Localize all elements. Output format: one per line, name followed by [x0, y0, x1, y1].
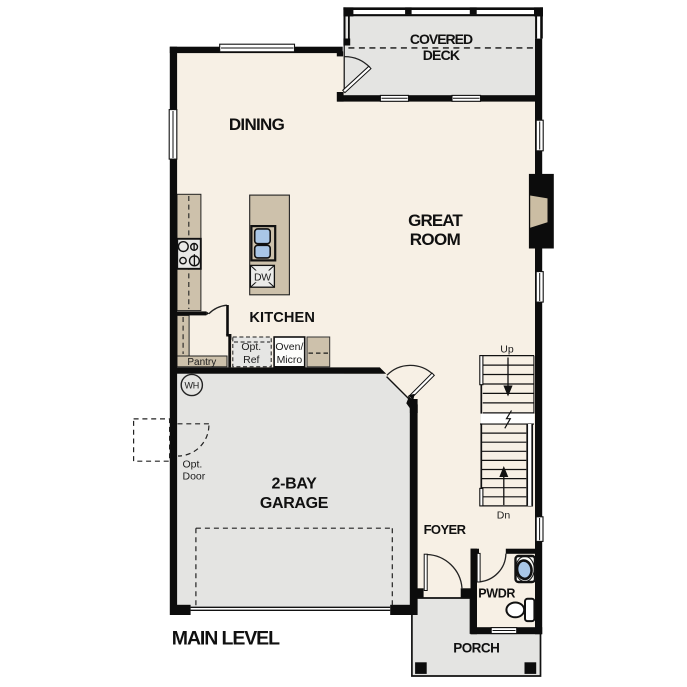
svg-text:GREAT: GREAT [408, 211, 463, 230]
svg-text:DINING: DINING [229, 115, 285, 134]
svg-text:KITCHEN: KITCHEN [249, 310, 315, 326]
svg-text:Micro: Micro [277, 354, 303, 366]
svg-text:DECK: DECK [423, 47, 460, 63]
svg-text:PWDR: PWDR [478, 586, 515, 600]
svg-text:ROOM: ROOM [410, 230, 461, 249]
svg-text:Pantry: Pantry [187, 357, 216, 368]
svg-text:FOYER: FOYER [424, 522, 467, 537]
svg-text:2-BAY: 2-BAY [271, 475, 317, 492]
svg-text:Up: Up [500, 343, 514, 355]
svg-text:PORCH: PORCH [453, 641, 499, 656]
svg-text:COVERED: COVERED [410, 31, 473, 47]
svg-text:Oven/: Oven/ [275, 341, 303, 353]
svg-text:WH: WH [184, 381, 199, 391]
svg-text:Dn: Dn [497, 510, 511, 522]
svg-text:Ref: Ref [243, 354, 259, 366]
svg-text:Opt.: Opt. [183, 458, 203, 470]
svg-text:DW: DW [254, 272, 271, 284]
svg-text:GARAGE: GARAGE [260, 495, 329, 512]
svg-text:Door: Door [183, 470, 206, 482]
svg-text:MAIN LEVEL: MAIN LEVEL [172, 628, 280, 650]
svg-text:Opt.: Opt. [241, 341, 261, 353]
